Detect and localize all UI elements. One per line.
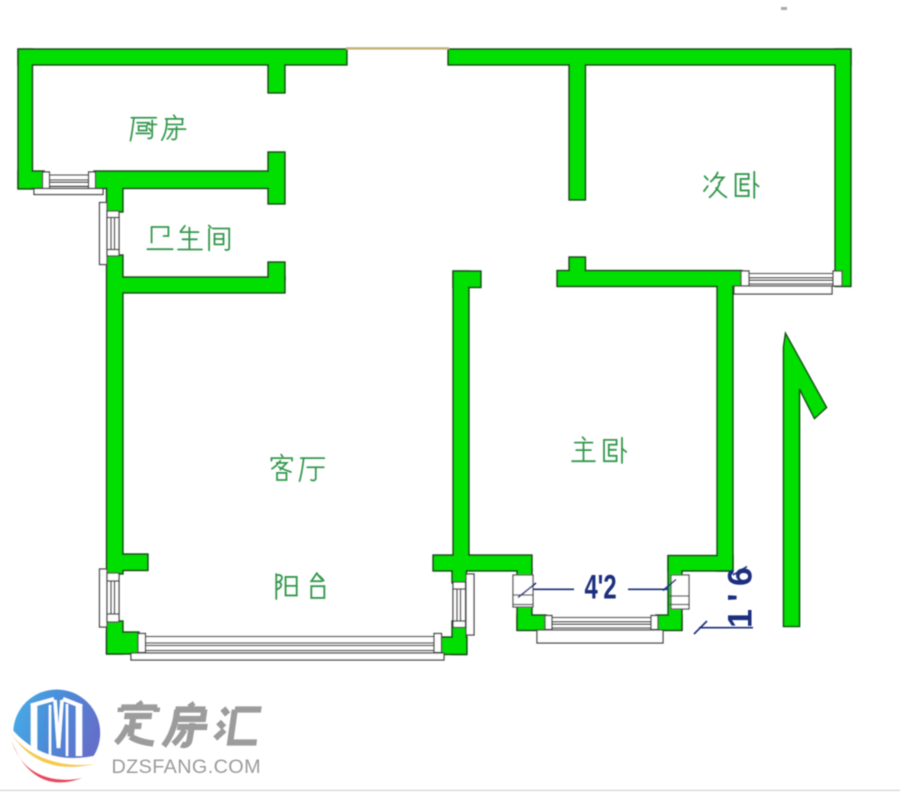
svg-text:4'2: 4'2	[584, 568, 616, 606]
svg-text:1'6: 1'6	[722, 560, 760, 628]
svg-text:DZSFANG.COM: DZSFANG.COM	[112, 756, 261, 778]
